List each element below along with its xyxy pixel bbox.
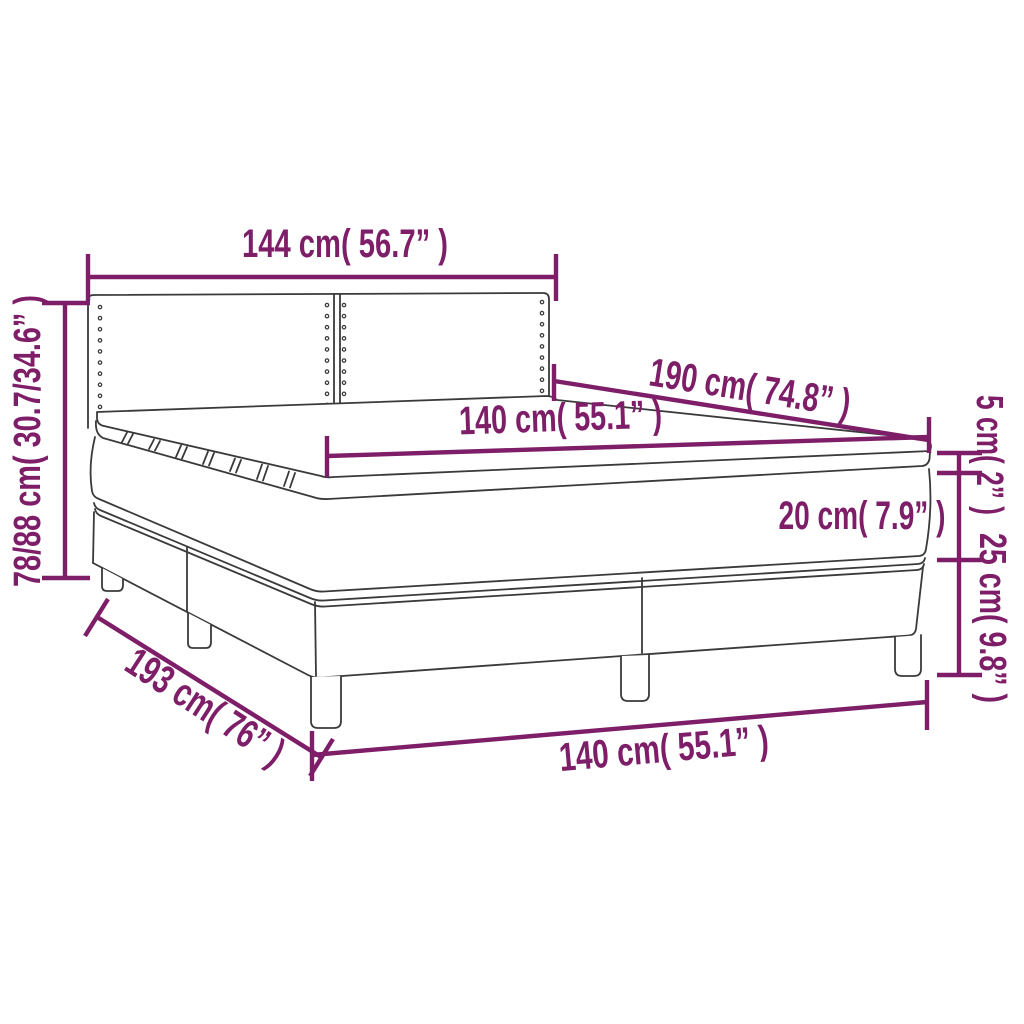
dimension-label: 5 cm( 2” ) bbox=[968, 395, 1010, 515]
dimension-label: 20 cm( 7.9” ) bbox=[779, 494, 946, 538]
bed-leg bbox=[102, 568, 123, 591]
dimension-label: 140 cm( 55.1” ) bbox=[557, 718, 770, 780]
dimension-label: 78/88 cm( 30.7/34.6” ) bbox=[7, 295, 49, 587]
dim-headboard-width: 144 cm( 56.7” ) bbox=[88, 222, 556, 301]
bed-leg bbox=[621, 655, 649, 701]
dimension-diagram: 144 cm( 56.7” ) 78/88 cm( 30.7/34.6” ) 1… bbox=[0, 0, 1024, 1024]
dim-overall-height: 78/88 cm( 30.7/34.6” ) bbox=[7, 295, 90, 587]
dimension-label: 25 cm( 9.8” ) bbox=[971, 533, 1013, 703]
dimension-label: 193 cm( 76” ) bbox=[118, 640, 293, 775]
dimension-label: 144 cm( 56.7” ) bbox=[242, 222, 448, 266]
dimension-label: 140 cm( 55.1” ) bbox=[458, 392, 662, 443]
dim-right-heights: 5 cm( 2” ) 25 cm( 9.8” ) bbox=[937, 395, 1013, 703]
dimension-tick bbox=[85, 599, 108, 636]
dim-base-width: 140 cm( 55.1” ) bbox=[312, 680, 927, 781]
dim-base-height: 25 cm( 9.8” ) bbox=[971, 533, 1013, 703]
dim-mattress-thickness: 20 cm( 7.9” ) bbox=[779, 494, 946, 538]
base-front-corner-edge bbox=[315, 602, 316, 676]
bed-leg bbox=[895, 635, 921, 676]
dim-topper-thickness: 5 cm( 2” ) bbox=[968, 395, 1010, 515]
base-back-left-edge bbox=[93, 512, 94, 563]
bed-leg bbox=[311, 676, 341, 728]
